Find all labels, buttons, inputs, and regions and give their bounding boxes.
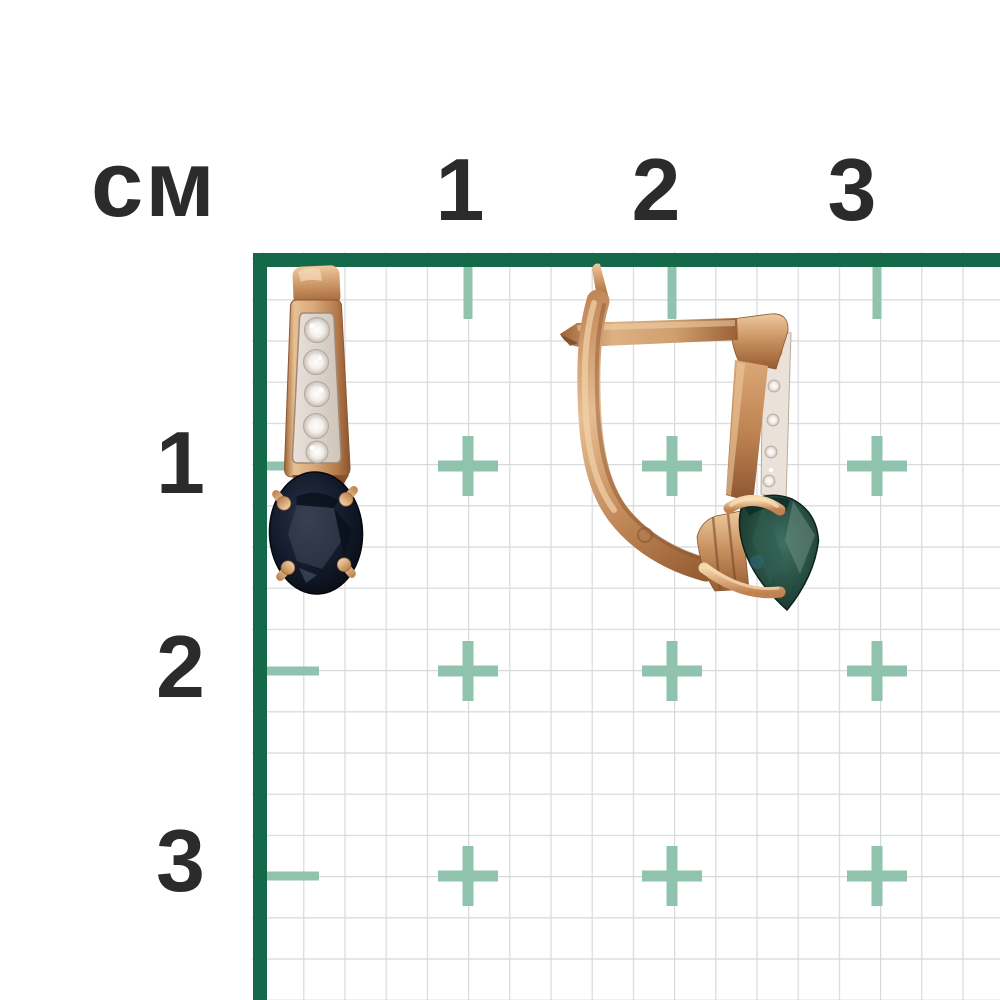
top-axis-label-3: 3 xyxy=(828,140,877,239)
pave-diamond xyxy=(305,382,330,407)
pave-diamond xyxy=(763,475,775,487)
sparkle xyxy=(769,468,773,472)
measurement-photo: см 1 2 3 1 2 3 xyxy=(0,0,1000,1000)
pave-diamond xyxy=(765,446,777,458)
pave-diamond xyxy=(305,318,330,343)
pave-diamond xyxy=(768,380,780,392)
top-axis-label-1: 1 xyxy=(436,140,485,239)
sparkle xyxy=(318,387,323,392)
grid-border-top xyxy=(253,253,1000,267)
product-photo: см 1 2 3 1 2 3 xyxy=(0,0,1000,1000)
pave-diamond xyxy=(767,414,779,426)
top-axis-label-2: 2 xyxy=(632,140,681,239)
pave-diamond xyxy=(306,441,328,463)
unit-label-cm: см xyxy=(91,131,217,236)
stone-glint xyxy=(750,555,764,569)
left-axis-label-3: 3 xyxy=(156,811,205,910)
left-axis-label-1: 1 xyxy=(156,413,205,512)
sparkle xyxy=(309,323,314,328)
left-axis-label-2: 2 xyxy=(156,617,205,716)
diamond-pave-bar xyxy=(284,300,350,477)
sparkle xyxy=(310,446,315,451)
sparkle xyxy=(318,356,322,360)
grid-border-left xyxy=(253,253,267,1000)
grid-lines xyxy=(252,252,1000,1000)
pave-diamond xyxy=(304,414,329,439)
pave-diamond xyxy=(304,350,329,375)
